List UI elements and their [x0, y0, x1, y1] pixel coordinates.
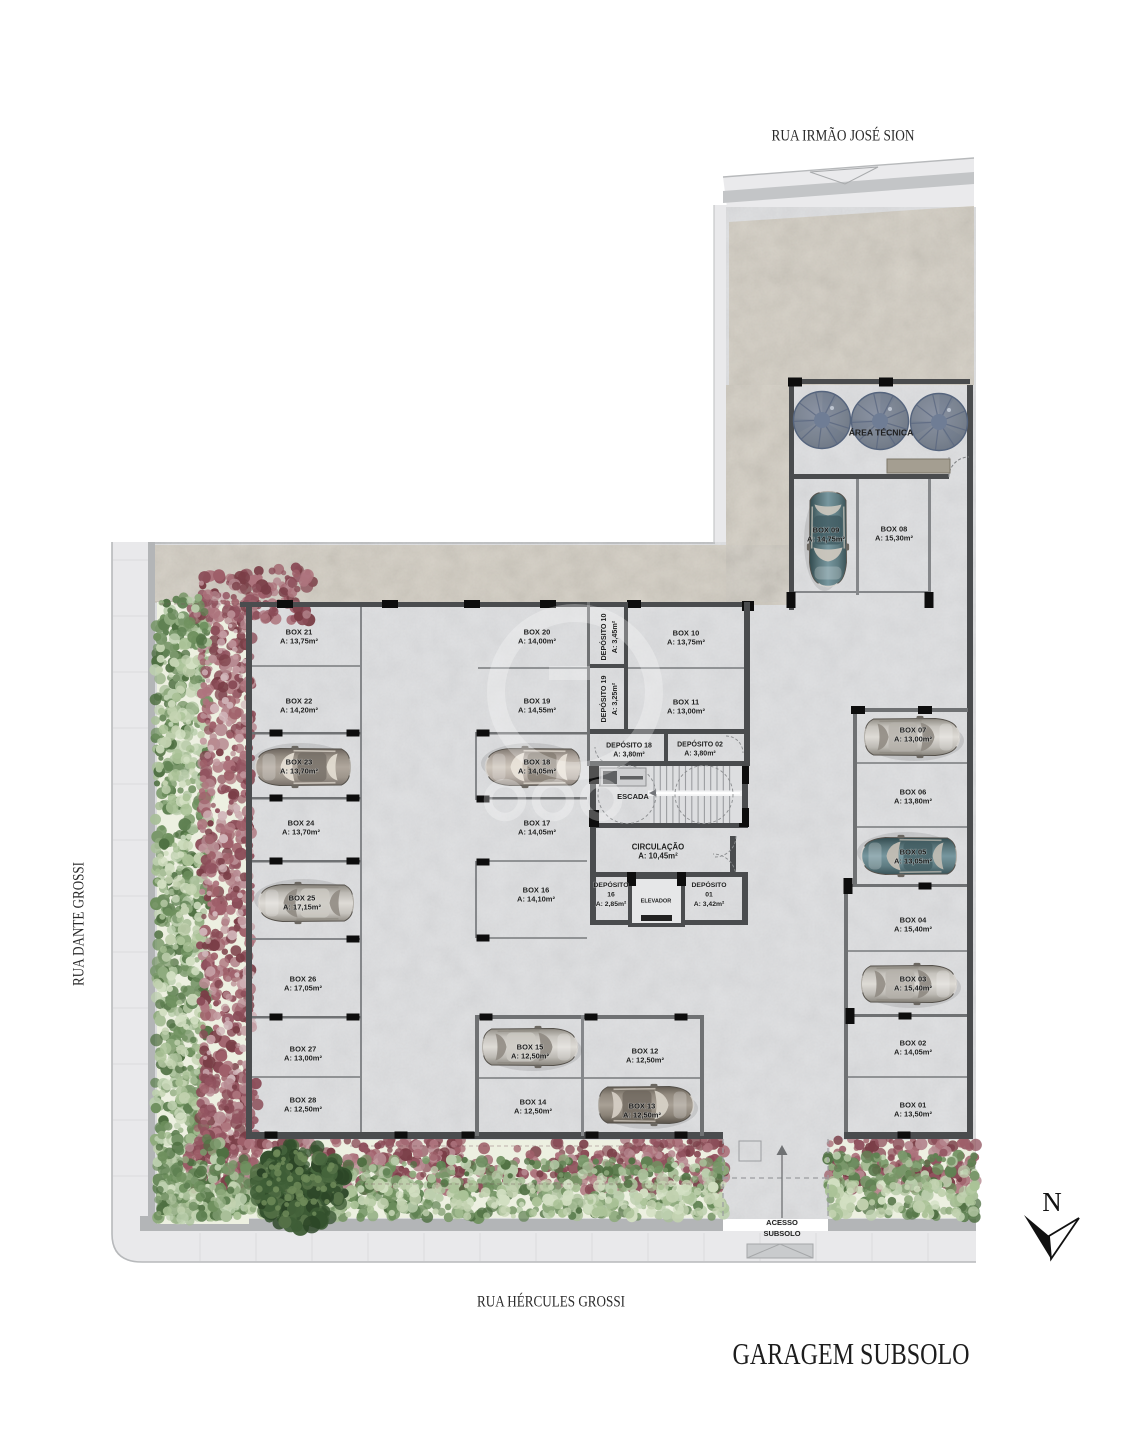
svg-text:CIRCULAÇÃO: CIRCULAÇÃO [632, 843, 684, 852]
svg-text:BOX 22: BOX 22 [286, 696, 313, 705]
svg-text:BOX 23: BOX 23 [286, 757, 313, 766]
svg-text:A: 3,80m²: A: 3,80m² [684, 750, 716, 757]
svg-text:RUA DANTE GROSSI: RUA DANTE GROSSI [71, 862, 88, 986]
svg-text:DEPÓSITO 18: DEPÓSITO 18 [606, 740, 652, 749]
svg-text:A: 13,70m²: A: 13,70m² [280, 766, 318, 775]
svg-text:A: 17,15m²: A: 17,15m² [283, 902, 321, 911]
svg-text:A: 12,50m²: A: 12,50m² [626, 1055, 664, 1064]
svg-text:ÁREA TÉCNICA: ÁREA TÉCNICA [849, 427, 914, 437]
svg-text:SUBSOLO: SUBSOLO [763, 1229, 800, 1238]
svg-text:RUA IRMÃO JOSÉ SION: RUA IRMÃO JOSÉ SION [772, 126, 915, 145]
svg-text:A: 14,55m²: A: 14,55m² [518, 705, 556, 714]
svg-text:BOX 24: BOX 24 [288, 818, 316, 827]
svg-text:A: 14,00m²: A: 14,00m² [518, 636, 556, 645]
svg-text:BOX 27: BOX 27 [290, 1044, 317, 1053]
svg-text:A: 10,45m²: A: 10,45m² [638, 852, 678, 861]
svg-text:A: 12,50m²: A: 12,50m² [623, 1110, 661, 1119]
svg-text:A: 13,05m²: A: 13,05m² [894, 856, 932, 865]
svg-text:A: 17,05m²: A: 17,05m² [284, 983, 322, 992]
svg-text:A: 3,25m²: A: 3,25m² [610, 682, 619, 715]
svg-text:A: 15,40m²: A: 15,40m² [894, 983, 932, 992]
svg-text:BOX 05: BOX 05 [900, 847, 927, 856]
svg-text:BOX 14: BOX 14 [520, 1097, 548, 1106]
svg-text:A: 13,00m²: A: 13,00m² [667, 706, 705, 715]
svg-text:BOX 07: BOX 07 [900, 725, 927, 734]
svg-text:A: 14,75m²: A: 14,75m² [807, 534, 845, 543]
svg-text:A: 15,40m²: A: 15,40m² [894, 924, 932, 933]
svg-text:BOX 16: BOX 16 [523, 885, 550, 894]
svg-text:BOX 20: BOX 20 [524, 627, 551, 636]
svg-text:A: 12,50m²: A: 12,50m² [514, 1106, 552, 1115]
svg-text:ELEVADOR: ELEVADOR [641, 898, 672, 904]
svg-text:01: 01 [705, 891, 713, 898]
svg-text:BOX 04: BOX 04 [900, 915, 928, 924]
svg-text:A: 3,80m²: A: 3,80m² [613, 751, 645, 758]
svg-text:BOX 21: BOX 21 [286, 627, 313, 636]
svg-text:BOX 11: BOX 11 [673, 697, 699, 706]
svg-text:BOX 03: BOX 03 [900, 974, 927, 983]
svg-text:A: 3,42m²: A: 3,42m² [694, 901, 725, 908]
svg-text:DEPÓSITO 19: DEPÓSITO 19 [599, 675, 608, 722]
svg-text:DEPÓSITO: DEPÓSITO [594, 880, 629, 889]
svg-text:BOX 10: BOX 10 [673, 628, 700, 637]
svg-text:A: 14,05m²: A: 14,05m² [894, 1047, 932, 1056]
svg-text:RUA HÉRCULES GROSSI: RUA HÉRCULES GROSSI [477, 1292, 625, 1311]
svg-text:A: 13,75m²: A: 13,75m² [667, 637, 705, 646]
svg-text:DEPÓSITO: DEPÓSITO [692, 880, 727, 889]
svg-text:ACESSO: ACESSO [766, 1218, 798, 1227]
svg-text:A: 3,45m²: A: 3,45m² [610, 620, 619, 653]
svg-text:ESCADA: ESCADA [617, 792, 649, 801]
svg-text:BOX 09: BOX 09 [813, 525, 840, 534]
svg-text:BOX 13: BOX 13 [629, 1101, 656, 1110]
svg-text:A: 14,20m²: A: 14,20m² [280, 705, 318, 714]
svg-text:A: 13,70m²: A: 13,70m² [282, 827, 320, 836]
svg-text:BOX 06: BOX 06 [900, 787, 927, 796]
svg-text:A: 12,50m²: A: 12,50m² [284, 1104, 322, 1113]
svg-text:A: 2,85m²: A: 2,85m² [596, 901, 627, 908]
svg-text:A: 14,05m²: A: 14,05m² [518, 827, 556, 836]
svg-text:BOX 15: BOX 15 [517, 1042, 544, 1051]
svg-text:A: 14,05m²: A: 14,05m² [518, 766, 556, 775]
svg-text:DEPÓSITO 02: DEPÓSITO 02 [677, 739, 723, 748]
svg-text:A: 15,30m²: A: 15,30m² [875, 533, 913, 542]
svg-text:A: 12,50m²: A: 12,50m² [511, 1051, 549, 1060]
svg-text:BOX 19: BOX 19 [524, 696, 551, 705]
svg-text:A: 14,10m²: A: 14,10m² [517, 894, 555, 903]
svg-text:BOX 01: BOX 01 [900, 1100, 927, 1109]
svg-text:16: 16 [607, 891, 615, 898]
svg-text:BOX 08: BOX 08 [881, 524, 908, 533]
svg-text:BOX 18: BOX 18 [524, 757, 551, 766]
svg-text:DEPÓSITO 10: DEPÓSITO 10 [599, 613, 608, 660]
svg-text:A: 13,00m²: A: 13,00m² [284, 1053, 322, 1062]
svg-text:A: 13,75m²: A: 13,75m² [280, 636, 318, 645]
svg-text:BOX 17: BOX 17 [524, 818, 551, 827]
svg-text:A: 13,80m²: A: 13,80m² [894, 796, 932, 805]
svg-text:BOX 25: BOX 25 [289, 893, 316, 902]
svg-text:GARAGEM SUBSOLO: GARAGEM SUBSOLO [733, 1336, 970, 1371]
svg-text:BOX 28: BOX 28 [290, 1095, 317, 1104]
svg-text:BOX 12: BOX 12 [632, 1046, 659, 1055]
svg-text:BOX 26: BOX 26 [290, 974, 317, 983]
svg-text:BOX 02: BOX 02 [900, 1038, 927, 1047]
svg-text:A: 13,50m²: A: 13,50m² [894, 1109, 932, 1118]
svg-text:A: 13,00m²: A: 13,00m² [894, 734, 932, 743]
svg-text:N: N [1042, 1187, 1062, 1217]
